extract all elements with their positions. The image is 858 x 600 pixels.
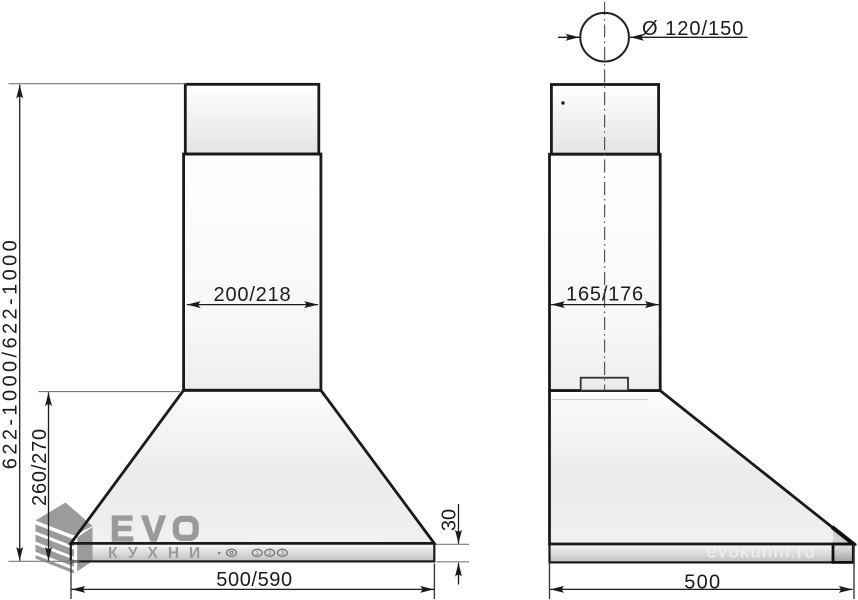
svg-text:КУХНИ: КУХНИ (108, 545, 210, 562)
svg-text:500/590: 500/590 (216, 569, 293, 591)
svg-text:30: 30 (439, 509, 461, 531)
svg-text:Ø 120/150: Ø 120/150 (642, 18, 744, 40)
svg-text:1: 1 (255, 550, 259, 557)
svg-text:500: 500 (684, 571, 721, 593)
svg-text:200/218: 200/218 (214, 284, 292, 306)
svg-text:2: 2 (268, 550, 272, 557)
svg-text:3: 3 (281, 550, 285, 557)
svg-text:622-1000/622-1000: 622-1000/622-1000 (0, 237, 21, 469)
svg-text:165/176: 165/176 (566, 283, 644, 305)
svg-text:260/270: 260/270 (29, 428, 51, 506)
